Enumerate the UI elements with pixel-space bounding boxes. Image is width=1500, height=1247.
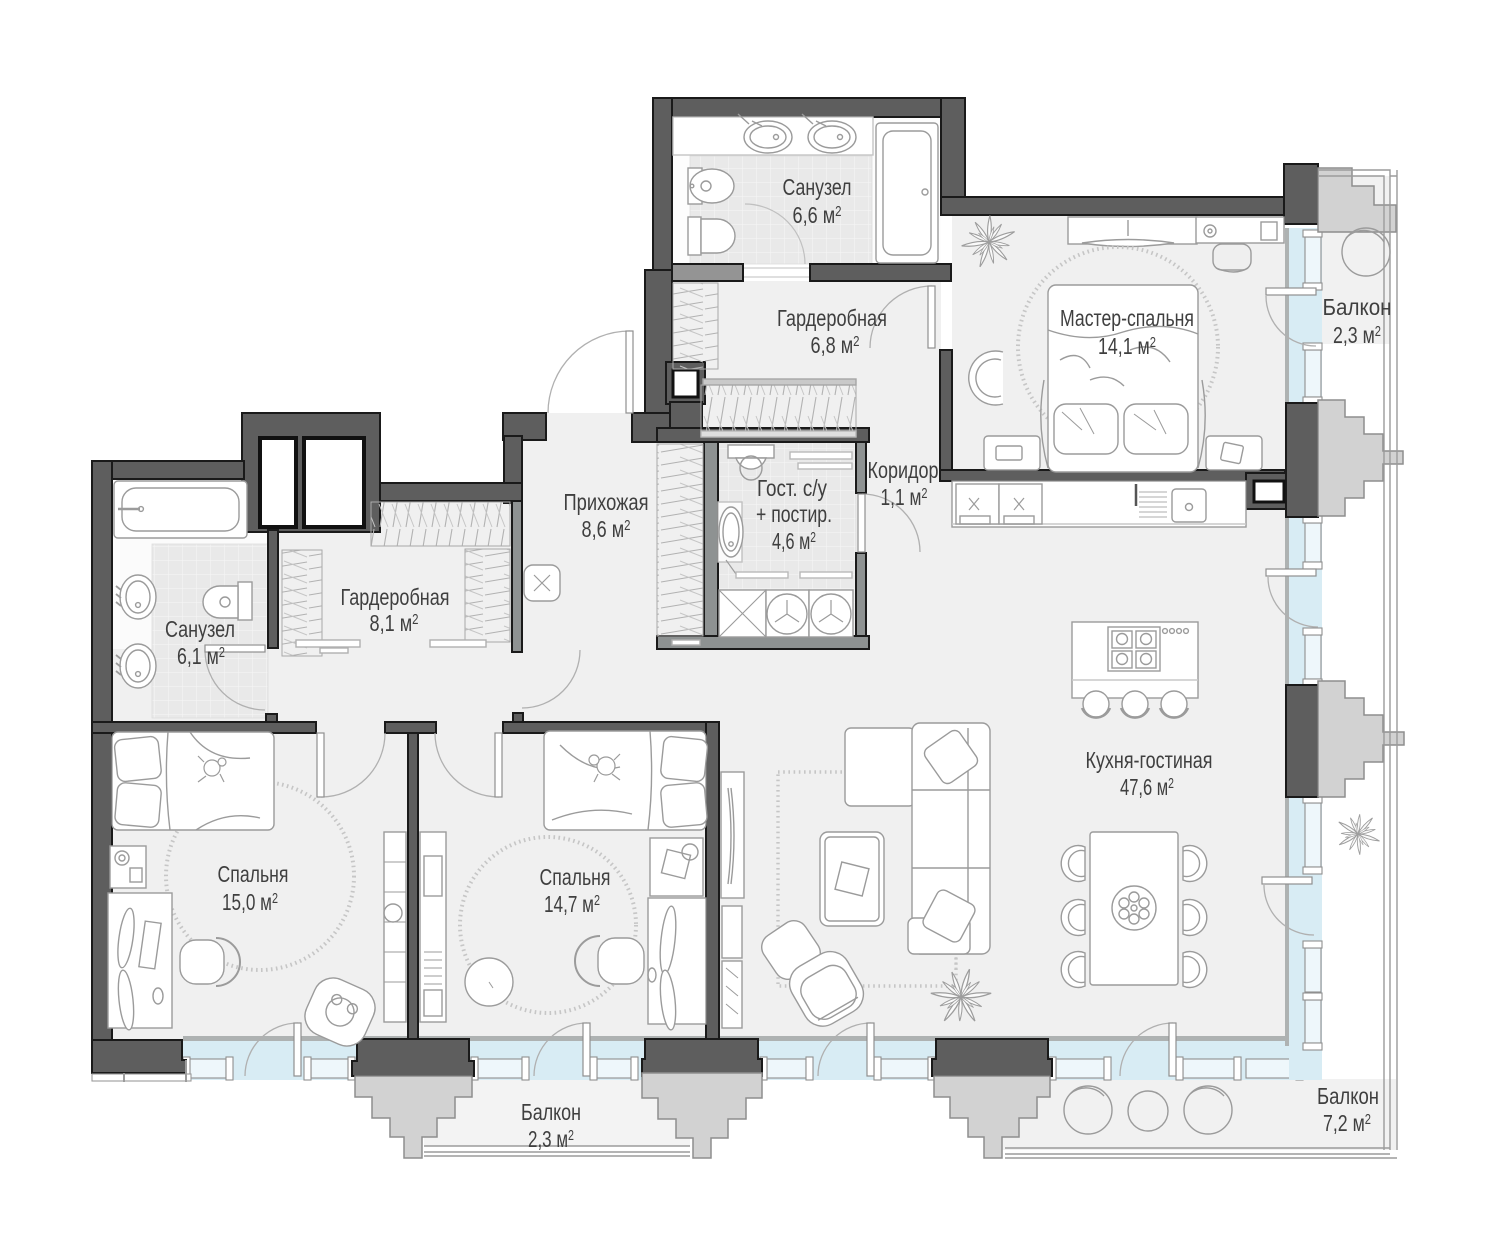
svg-text:6,1 м2: 6,1 м2: [177, 643, 225, 669]
svg-text:+ постир.: + постир.: [756, 501, 832, 527]
svg-text:Балкон: Балкон: [1317, 1083, 1379, 1109]
svg-text:2,3 м2: 2,3 м2: [528, 1126, 574, 1152]
svg-text:15,0 м2: 15,0 м2: [222, 889, 278, 915]
svg-text:6,6 м2: 6,6 м2: [793, 202, 842, 228]
svg-text:Балкон: Балкон: [1323, 294, 1392, 320]
svg-text:1,1 м2: 1,1 м2: [881, 484, 928, 510]
svg-text:Коридор: Коридор: [868, 457, 939, 483]
svg-text:6,8 м2: 6,8 м2: [811, 332, 860, 358]
svg-text:8,1 м2: 8,1 м2: [370, 610, 419, 636]
svg-text:Мастер-спальня: Мастер-спальня: [1060, 305, 1194, 331]
svg-text:7,2 м2: 7,2 м2: [1323, 1110, 1371, 1136]
svg-text:2,3 м2: 2,3 м2: [1333, 322, 1381, 348]
svg-text:Гардеробная: Гардеробная: [777, 305, 887, 331]
svg-text:8,6 м2: 8,6 м2: [582, 516, 631, 542]
svg-text:Гардеробная: Гардеробная: [341, 584, 450, 610]
svg-text:Прихожая: Прихожая: [564, 489, 649, 515]
svg-text:Кухня-гостиная: Кухня-гостиная: [1086, 747, 1213, 773]
svg-text:47,6 м2: 47,6 м2: [1120, 774, 1174, 800]
svg-text:14,7 м2: 14,7 м2: [544, 891, 600, 917]
svg-text:Балкон: Балкон: [521, 1099, 581, 1125]
svg-text:Гост. с/у: Гост. с/у: [757, 475, 827, 501]
svg-text:Спальня: Спальня: [218, 861, 289, 887]
svg-text:4,6 м2: 4,6 м2: [772, 528, 816, 554]
svg-text:Санузел: Санузел: [165, 616, 235, 642]
svg-text:14,1 м2: 14,1 м2: [1098, 333, 1156, 359]
svg-text:Спальня: Спальня: [540, 864, 611, 890]
svg-text:Санузел: Санузел: [783, 174, 852, 200]
